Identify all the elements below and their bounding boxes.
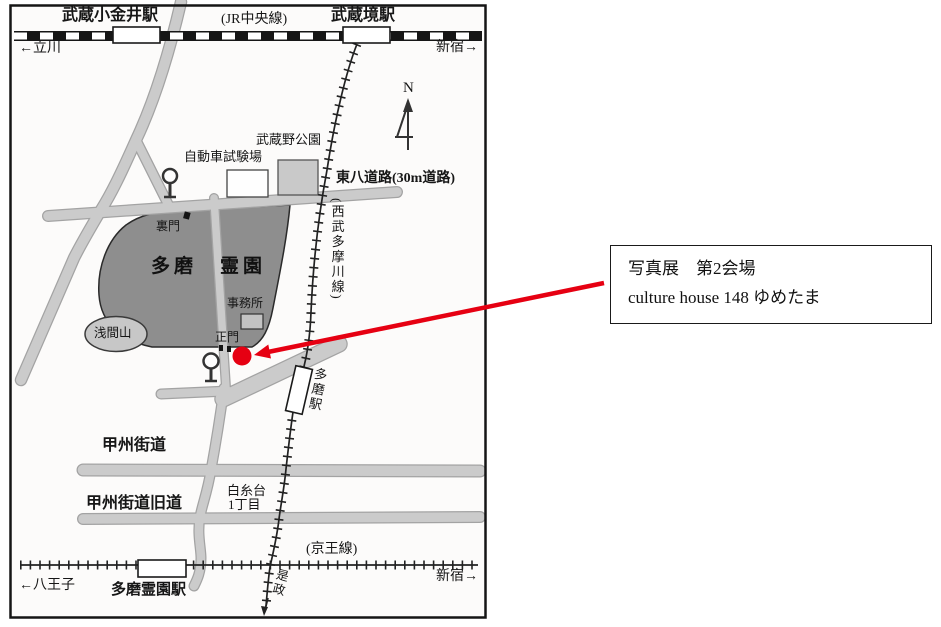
station-label-musashi-koganei: 武蔵小金井駅: [62, 8, 158, 25]
main-gate-mark: [219, 345, 223, 351]
screenshot-stage: 武蔵小金井駅 (JR中央線) 武蔵境駅 ←立川 新宿→ N 武蔵野公園 自動車試…: [0, 0, 941, 627]
cemetery-office-box: [241, 314, 263, 329]
direction-label-hachioji: ←八王子: [19, 579, 75, 594]
koshu-kaido-label: 甲州街道: [102, 438, 166, 455]
musashino-park-label: 武蔵野公園: [256, 133, 321, 147]
seibu-line-label: (西武多摩川線): [330, 198, 344, 301]
callout-line2: culture house 148 ゆめたま: [628, 283, 931, 312]
station-label-musashi-sakai: 武蔵境駅: [331, 8, 395, 25]
jr-chuo-line-label: (JR中央線): [221, 13, 287, 28]
shiraitodai-label-line2: 1丁目: [228, 498, 261, 512]
musashi-koganei-station-box: [113, 27, 160, 43]
cemetery-name-label: 多磨 霊園: [151, 257, 266, 277]
direction-label-tachikawa: ←立川: [19, 42, 61, 57]
musashino-park-box: [278, 160, 318, 195]
driver-test-center-label: 自動車試験場: [184, 150, 262, 164]
direction-label-shinjuku-top: 新宿→: [436, 41, 478, 56]
keio-line-label: (京王線): [306, 543, 357, 558]
tama-reien-station-label: 多磨霊園駅: [111, 583, 186, 599]
road-koshu-kaido-old: [83, 517, 480, 519]
compass-n-label: N: [403, 81, 414, 97]
sengenyama-label: 浅間山: [94, 327, 132, 340]
venue-callout-box: 写真展 第2会場 culture house 148 ゆめたま: [610, 245, 932, 324]
musashi-sakai-station-box: [343, 27, 390, 43]
driver-test-center-box: [227, 170, 268, 197]
cemetery-office-label: 事務所: [227, 297, 263, 310]
callout-line1: 写真展 第2会場: [628, 254, 931, 283]
shiraitodai-label-line1: 白糸台: [227, 484, 266, 498]
direction-label-shinjuku-bottom: 新宿→: [436, 570, 478, 585]
tama-reien-station-box: [138, 560, 186, 577]
main-gate-mark: [227, 346, 231, 352]
koshu-kaido-old-label: 甲州街道旧道: [86, 496, 182, 513]
main-gate-label: 正門: [215, 331, 239, 344]
tohachi-road-label: 東八道路(30m道路): [336, 172, 455, 187]
venue-marker-dot: [233, 347, 252, 366]
road-koshu-kaido: [83, 470, 480, 471]
back-gate-label: 裏門: [156, 220, 180, 233]
